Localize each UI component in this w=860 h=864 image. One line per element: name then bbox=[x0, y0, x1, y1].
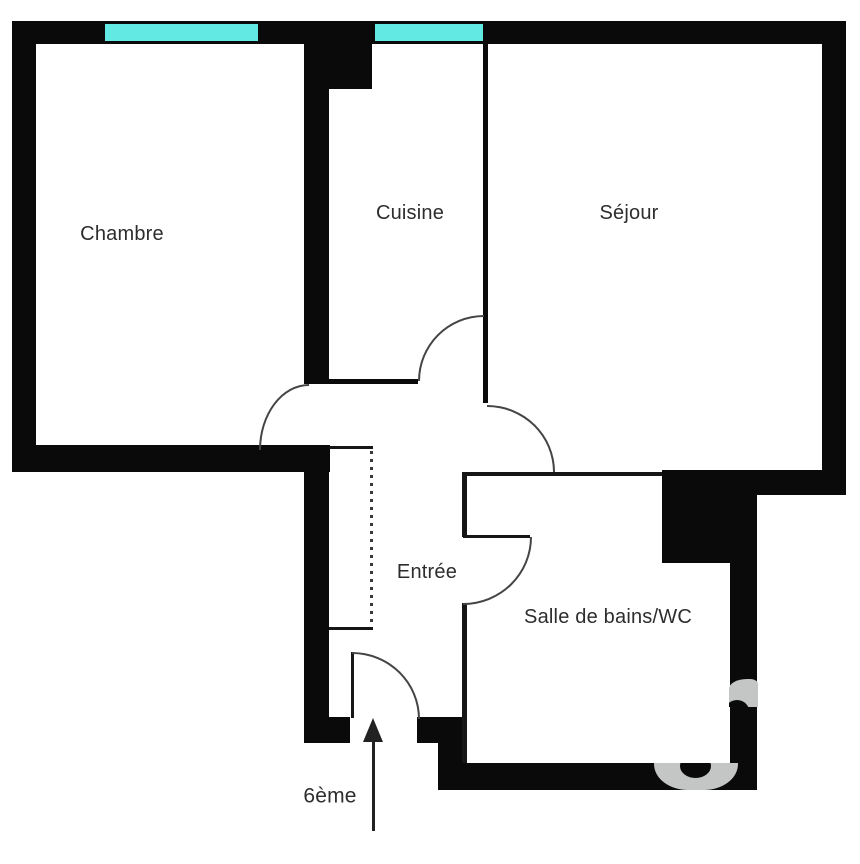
bath-door-arc bbox=[463, 537, 532, 605]
wall-bath-top bbox=[462, 472, 662, 476]
window-cuisine bbox=[375, 24, 483, 41]
wall-bath-right bbox=[730, 563, 757, 790]
wall-bath-left-upper bbox=[462, 472, 467, 537]
watermark-fragment-u bbox=[654, 763, 738, 790]
wall-entree-left bbox=[304, 472, 329, 743]
cuisine-door-arc bbox=[418, 315, 484, 381]
wall-entree-bottom-stub bbox=[304, 717, 350, 743]
watermark-fragment-band bbox=[729, 679, 758, 707]
room-label-sejour: Séjour bbox=[599, 203, 658, 223]
entry-arrow-icon bbox=[363, 718, 383, 742]
room-label-chambre: Chambre bbox=[80, 224, 164, 244]
wall-bath-ne-wide bbox=[662, 470, 845, 495]
closet-dotted-line bbox=[370, 451, 373, 627]
entry-arrow-shaft bbox=[372, 740, 375, 831]
room-label-entree: Entrée bbox=[397, 562, 457, 582]
sejour-door-arc bbox=[487, 405, 555, 472]
wall-chambre-cuisine bbox=[304, 89, 329, 384]
floor-label: 6ème bbox=[303, 786, 356, 807]
front-door-arc bbox=[352, 652, 420, 719]
wall-front-door-stub bbox=[417, 717, 462, 743]
wall-bath-left-lower bbox=[462, 603, 467, 763]
closet-line-top bbox=[329, 446, 373, 449]
wall-front-door-connector bbox=[438, 743, 462, 763]
closet-line-bottom bbox=[329, 627, 373, 630]
room-label-cuisine: Cuisine bbox=[376, 203, 444, 223]
floor-plan: Chambre Cuisine Séjour Entrée Salle de b… bbox=[0, 0, 860, 864]
wall-right bbox=[822, 21, 846, 495]
wall-bath-ne-block bbox=[662, 495, 757, 563]
window-chambre bbox=[105, 24, 258, 41]
wall-left bbox=[12, 21, 36, 472]
wall-between-windows-block bbox=[304, 44, 372, 89]
room-label-bains: Salle de bains/WC bbox=[524, 607, 692, 627]
chambre-door-arc bbox=[259, 384, 309, 450]
wall-cuisine-bottom bbox=[329, 379, 418, 384]
